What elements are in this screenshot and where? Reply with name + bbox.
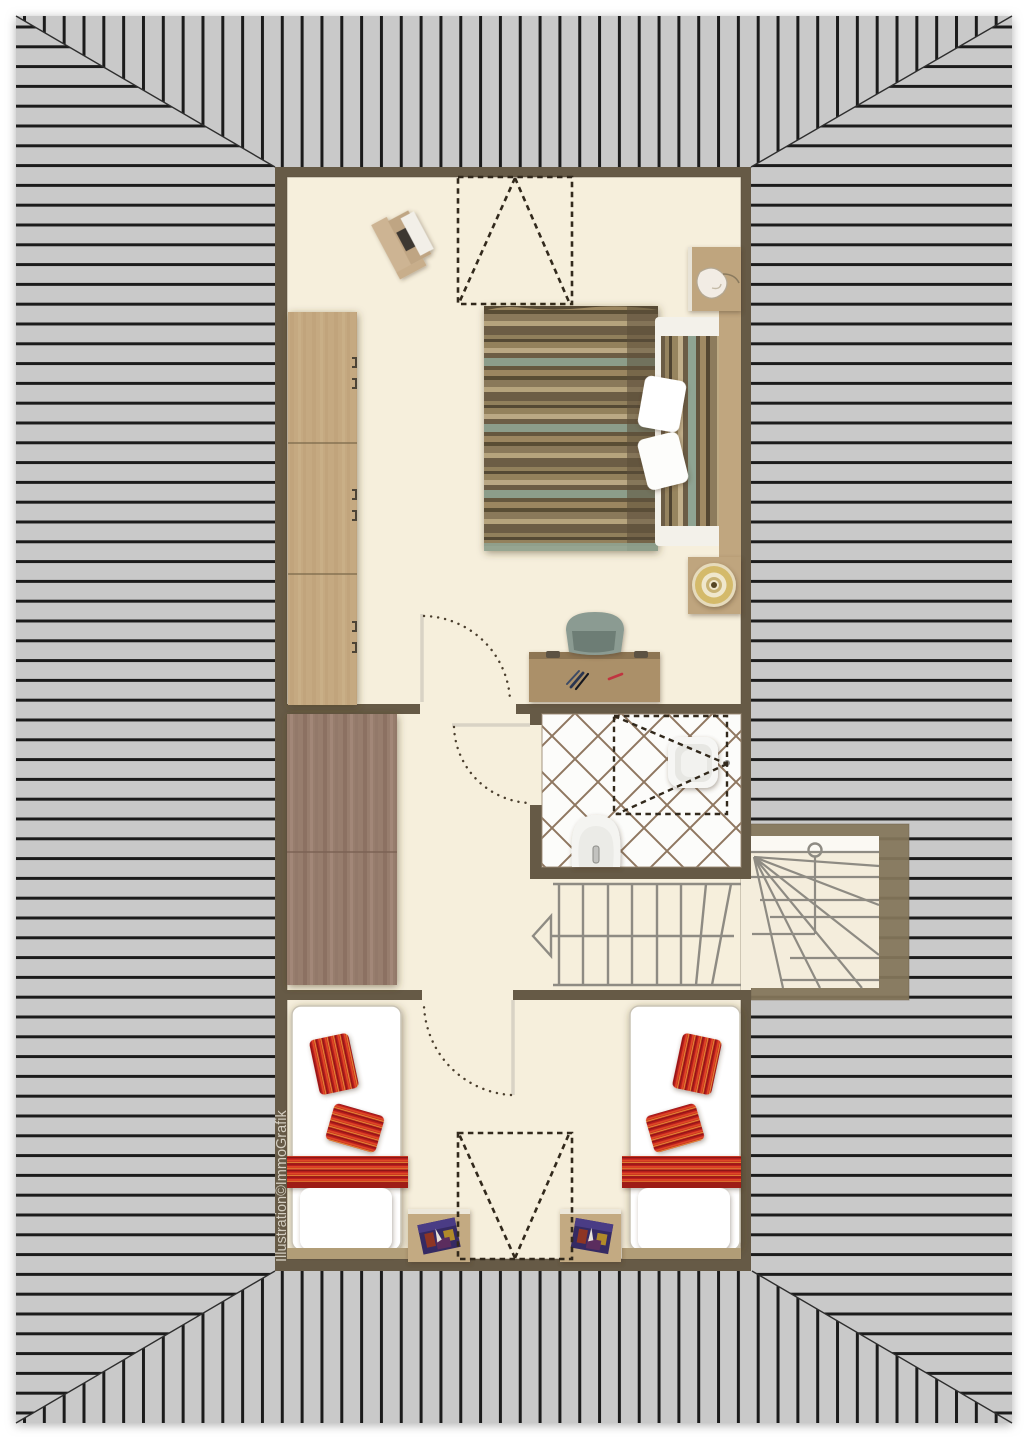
svg-text:Illustration©ImmoGrafik: Illustration©ImmoGrafik — [274, 1110, 290, 1262]
